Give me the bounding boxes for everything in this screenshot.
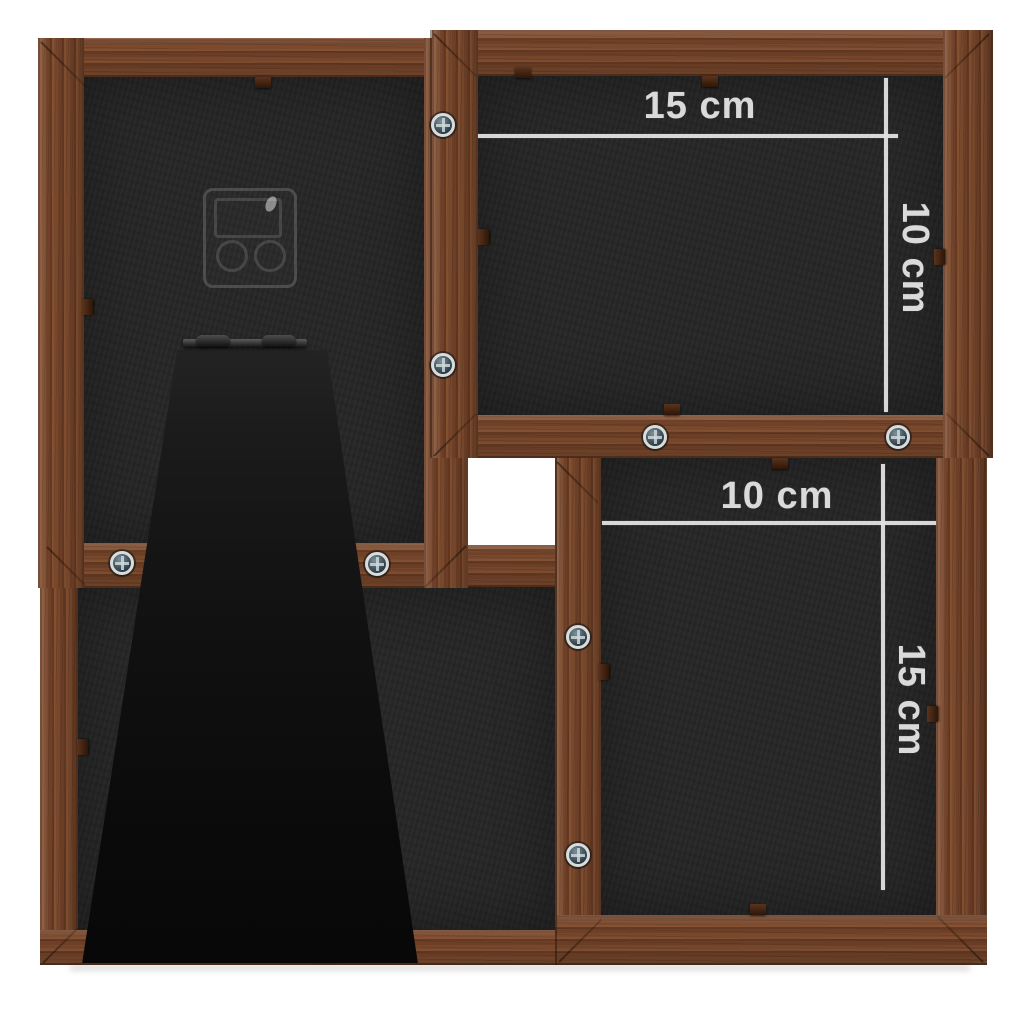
frame-bottom-right-rail-right [936, 458, 987, 965]
frame-bottom-right-rail-left [555, 458, 601, 965]
stand-hinge-wing-right [262, 335, 296, 347]
frame-top-right-rail-left [432, 30, 478, 458]
wall-hanger-hole-left [216, 240, 248, 272]
screw [431, 353, 455, 377]
retainer-clip [664, 404, 680, 415]
frame-bottom-left-rail-left [40, 545, 78, 965]
measure-line-height-top-right [884, 78, 888, 412]
measure-label-height-top-right: 10 cm [893, 138, 937, 378]
measure-label-height-bottom-right: 15 cm [889, 580, 933, 820]
retainer-clip [478, 229, 489, 245]
measure-line-height-bottom-right [881, 464, 885, 890]
retainer-clip [255, 77, 271, 88]
frame-top-left-rail-left [38, 38, 84, 588]
frame-bottom-right-rail-bottom [555, 915, 987, 965]
retainer-clip [77, 739, 88, 755]
retainer-clip [750, 904, 766, 915]
measure-label-width-top-right: 15 cm [580, 84, 820, 128]
frame-bottom-left-rail-top [468, 545, 555, 587]
measure-line-width-top-right [478, 134, 898, 138]
frame-bottom-right-backing [601, 458, 936, 915]
retainer-clip [598, 664, 609, 680]
frame-top-right-rail-right [943, 30, 993, 458]
retainer-clip [515, 67, 531, 78]
wall-hanger-hole-right [254, 240, 286, 272]
screw [365, 552, 389, 576]
screw [566, 625, 590, 649]
ground-shadow [70, 964, 970, 971]
retainer-clip [772, 458, 788, 469]
screw [431, 113, 455, 137]
screw [643, 425, 667, 449]
frame-top-left-rail-top [38, 38, 468, 77]
frame-overlap-seam-vertical-2 [555, 458, 557, 965]
measure-line-width-bottom-right [602, 521, 936, 525]
retainer-clip [82, 299, 93, 315]
measure-label-width-bottom-right: 10 cm [657, 474, 897, 518]
screw [110, 551, 134, 575]
product-photo-collage-frame-back: 15 cm 10 cm 10 cm 15 cm [0, 0, 1024, 1024]
screw [566, 843, 590, 867]
stand-hinge-wing-left [196, 335, 230, 347]
frame-overlap-seam-vertical [430, 30, 432, 458]
screw [886, 425, 910, 449]
